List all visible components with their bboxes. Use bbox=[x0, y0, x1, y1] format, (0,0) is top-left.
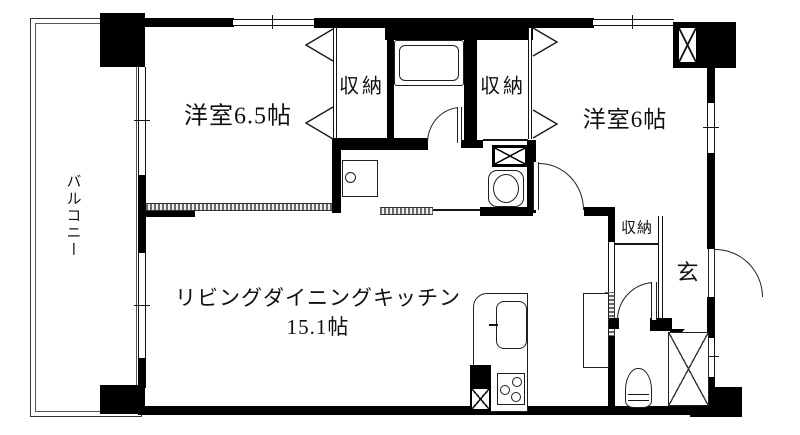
washbasin-bowl bbox=[493, 174, 519, 203]
entrance-door-arc bbox=[715, 249, 763, 297]
toilet-icon bbox=[625, 368, 652, 408]
bedroom65-label: 洋室6.5帖 bbox=[184, 96, 292, 131]
wall-mid-horizontal bbox=[332, 138, 428, 150]
kitchen-duct-icon bbox=[472, 389, 489, 409]
wall-left-low bbox=[138, 358, 146, 388]
burner-icon bbox=[511, 392, 521, 402]
bedroom6-label: 洋室6帖 bbox=[583, 100, 668, 134]
toilet-tank-line bbox=[628, 394, 649, 395]
sliding-door-washroom bbox=[380, 207, 433, 215]
closet-left-front bbox=[333, 28, 337, 138]
hall-opening bbox=[608, 242, 615, 292]
refrigerator-space bbox=[583, 293, 609, 368]
burner-icon bbox=[500, 385, 510, 395]
bathtub-inner bbox=[399, 45, 459, 81]
burner-icon bbox=[512, 377, 522, 387]
wall-bath-right bbox=[464, 38, 477, 148]
hall-closet-front-line bbox=[614, 243, 658, 245]
bathroom-door-leaf bbox=[457, 107, 462, 143]
bifold-door-icon bbox=[305, 106, 333, 140]
entrance-door-leaf bbox=[708, 249, 715, 297]
wall-hall-top bbox=[608, 213, 615, 242]
window-bedroom6 bbox=[707, 103, 715, 153]
window-tick bbox=[134, 120, 150, 121]
ldk-label-line1: リビングダイニングキッチン bbox=[175, 282, 461, 312]
toilet-tank-line bbox=[628, 400, 649, 401]
window-tick bbox=[632, 15, 633, 29]
floorplan: バルコニー bbox=[0, 0, 800, 435]
closet-right-label: 収納 bbox=[480, 70, 526, 99]
entrance-label: 玄 bbox=[676, 255, 699, 287]
closet-right-bottom-line bbox=[483, 139, 528, 141]
window-tick bbox=[272, 15, 273, 29]
sliding-partition-bedroom65 bbox=[146, 203, 332, 211]
drain-circle-icon bbox=[345, 172, 356, 183]
bathroom-door-arc bbox=[427, 107, 461, 143]
bedroom6-door-arc bbox=[539, 163, 584, 210]
kitchen-sink-icon bbox=[496, 301, 527, 349]
wall-right-a bbox=[707, 62, 715, 103]
duct-box-icon bbox=[679, 28, 696, 62]
wall-right-b bbox=[707, 153, 715, 249]
faucet-icon bbox=[489, 324, 498, 326]
bifold-door-icon bbox=[532, 109, 558, 139]
washroom-threshold-line bbox=[433, 209, 482, 211]
entrance-step-line bbox=[658, 216, 663, 320]
wall-block-top-left bbox=[100, 13, 145, 67]
wall-toilet-left bbox=[608, 336, 615, 410]
window-bedroom65 bbox=[138, 67, 146, 175]
wall-top-a bbox=[143, 18, 234, 27]
bifold-door-icon bbox=[305, 28, 333, 62]
balcony-inner-line bbox=[35, 23, 137, 412]
wall-washroom-left bbox=[332, 140, 341, 213]
wall-bath-left bbox=[387, 38, 394, 148]
window-tick bbox=[134, 305, 150, 306]
wall-ldk-top-a bbox=[480, 207, 533, 216]
duct-shaft-icon bbox=[668, 332, 709, 406]
balcony-label: バルコニー bbox=[63, 174, 84, 259]
bifold-door-icon bbox=[532, 27, 558, 57]
window-tick bbox=[703, 127, 719, 128]
wall-bath-top bbox=[385, 24, 533, 40]
closet-left-label: 収納 bbox=[339, 70, 385, 99]
toilet-door-leaf bbox=[651, 282, 657, 320]
wall-bath-door-stub bbox=[461, 140, 483, 148]
window-top-right bbox=[593, 19, 674, 26]
wall-bottom bbox=[138, 406, 742, 415]
pipe-space-icon bbox=[495, 148, 525, 164]
hall-closet-label: 収納 bbox=[621, 217, 653, 238]
ldk-label-line2: 15.1帖 bbox=[287, 311, 350, 341]
toilet-door-arc bbox=[617, 282, 655, 320]
window-top-left bbox=[233, 19, 315, 26]
